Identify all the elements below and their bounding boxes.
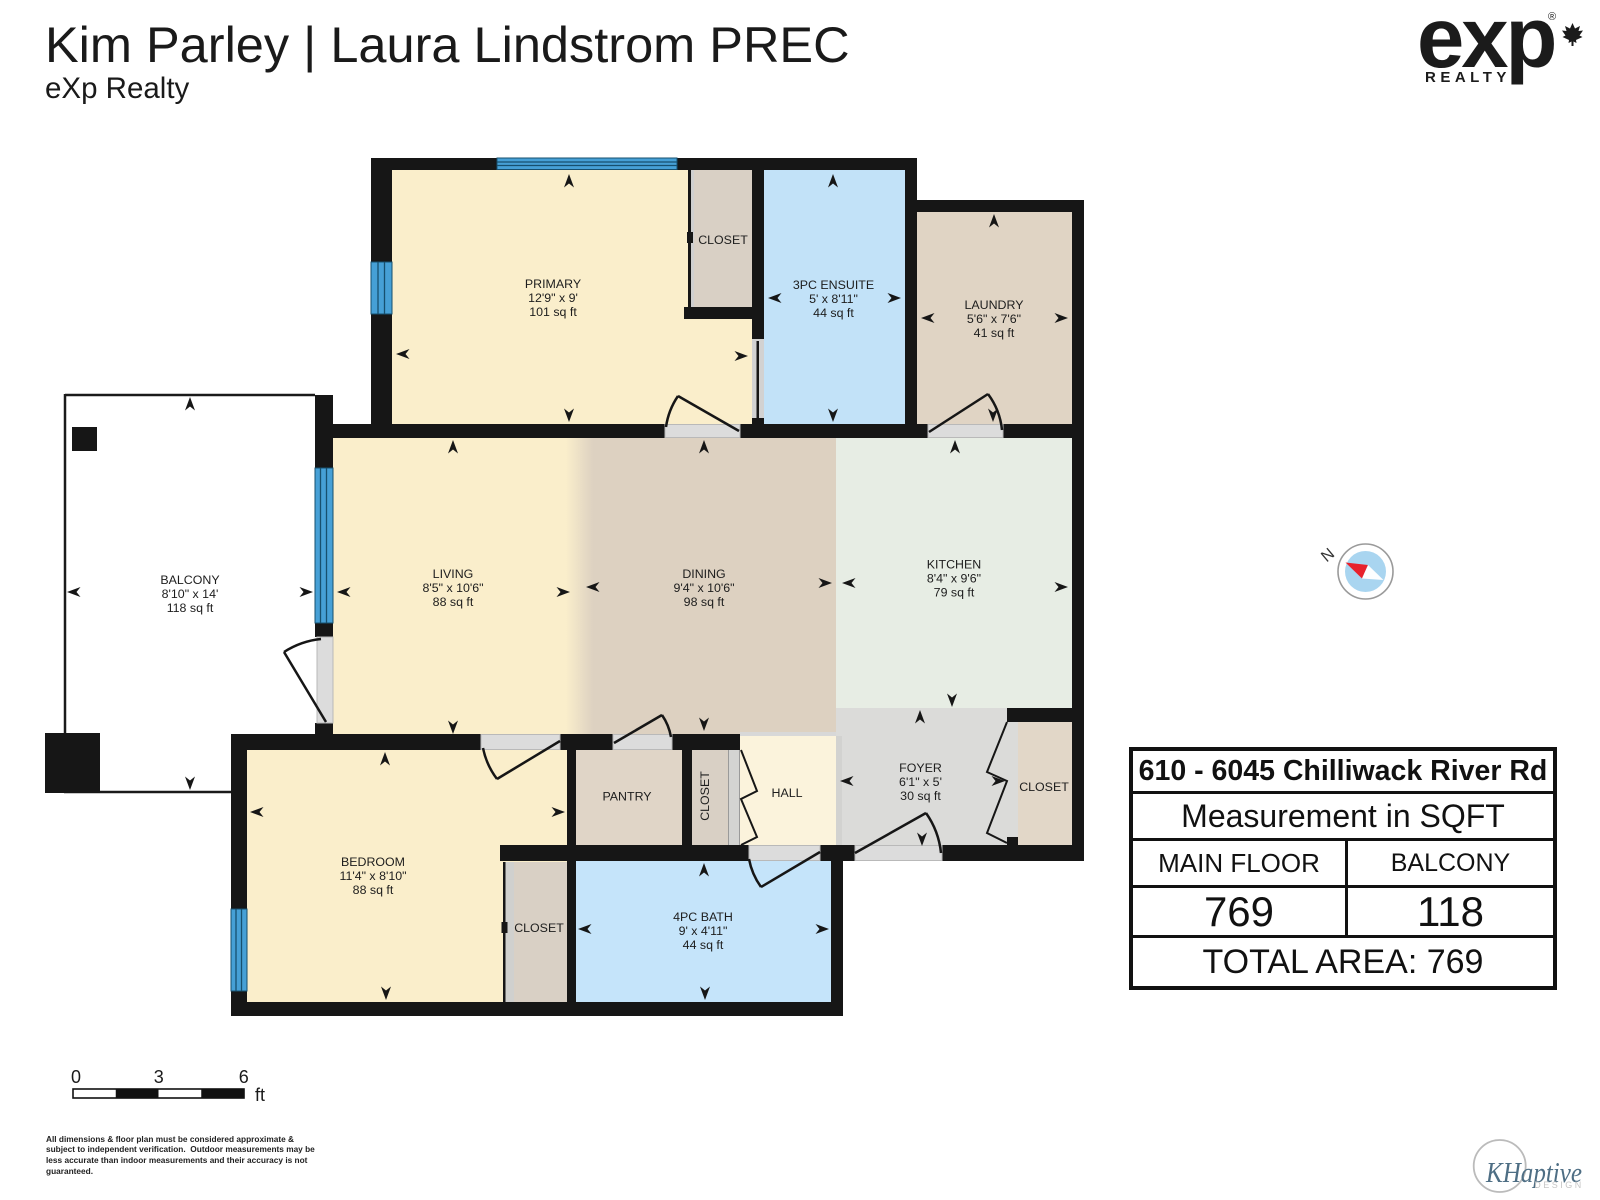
svg-text:ft: ft <box>255 1085 265 1105</box>
svg-text:12'9" x 9': 12'9" x 9' <box>528 291 578 305</box>
svg-text:8'4" x 9'6": 8'4" x 9'6" <box>927 572 981 586</box>
svg-text:8'10" x 14': 8'10" x 14' <box>162 587 219 601</box>
svg-text:KITCHEN: KITCHEN <box>927 558 981 572</box>
svg-text:3: 3 <box>154 1067 164 1087</box>
svg-text:CLOSET: CLOSET <box>698 771 712 821</box>
svg-text:3PC ENSUITE: 3PC ENSUITE <box>793 278 874 292</box>
svg-text:REALTY: REALTY <box>1425 69 1511 86</box>
svg-text:11'4" x 8'10": 11'4" x 8'10" <box>339 869 406 883</box>
svg-text:98 sq ft: 98 sq ft <box>684 595 725 609</box>
svg-text:5'6" x 7'6": 5'6" x 7'6" <box>967 312 1021 326</box>
svg-text:5' x 8'11": 5' x 8'11" <box>809 292 858 306</box>
svg-text:N: N <box>1318 545 1338 565</box>
svg-text:101 sq ft: 101 sq ft <box>529 305 577 319</box>
svg-text:FOYER: FOYER <box>899 761 942 775</box>
svg-text:88 sq ft: 88 sq ft <box>353 883 394 897</box>
svg-text:41 sq ft: 41 sq ft <box>974 326 1015 340</box>
svg-text:BALCONY: BALCONY <box>160 573 219 587</box>
svg-text:88 sq ft: 88 sq ft <box>433 595 474 609</box>
svg-text:CLOSET: CLOSET <box>698 233 748 247</box>
svg-text:0: 0 <box>71 1067 81 1087</box>
svg-text:118 sq ft: 118 sq ft <box>167 601 214 615</box>
svg-text:HALL: HALL <box>772 786 803 800</box>
svg-text:6'1" x 5': 6'1" x 5' <box>899 775 942 789</box>
svg-text:BEDROOM: BEDROOM <box>341 855 405 869</box>
svg-text:9'4" x 10'6": 9'4" x 10'6" <box>673 581 734 595</box>
svg-text:44 sq ft: 44 sq ft <box>813 306 854 320</box>
svg-text:PANTRY: PANTRY <box>602 790 651 804</box>
svg-text:6: 6 <box>239 1067 249 1087</box>
svg-text:CLOSET: CLOSET <box>514 921 564 935</box>
svg-text:44 sq ft: 44 sq ft <box>683 938 724 952</box>
svg-text:8'5" x 10'6": 8'5" x 10'6" <box>422 581 483 595</box>
svg-text:PRIMARY: PRIMARY <box>525 277 581 291</box>
svg-text:9' x 4'11": 9' x 4'11" <box>679 924 728 938</box>
svg-text:DINING: DINING <box>682 567 725 581</box>
svg-text:4PC BATH: 4PC BATH <box>673 910 733 924</box>
svg-text:79 sq ft: 79 sq ft <box>934 586 975 600</box>
svg-text:®: ® <box>1548 11 1556 23</box>
svg-text:LAUNDRY: LAUNDRY <box>965 298 1024 312</box>
svg-text:30 sq ft: 30 sq ft <box>900 789 941 803</box>
svg-text:CLOSET: CLOSET <box>1019 780 1069 794</box>
svg-text:LIVING: LIVING <box>433 567 474 581</box>
svg-text:DESIGN: DESIGN <box>1534 1180 1584 1190</box>
